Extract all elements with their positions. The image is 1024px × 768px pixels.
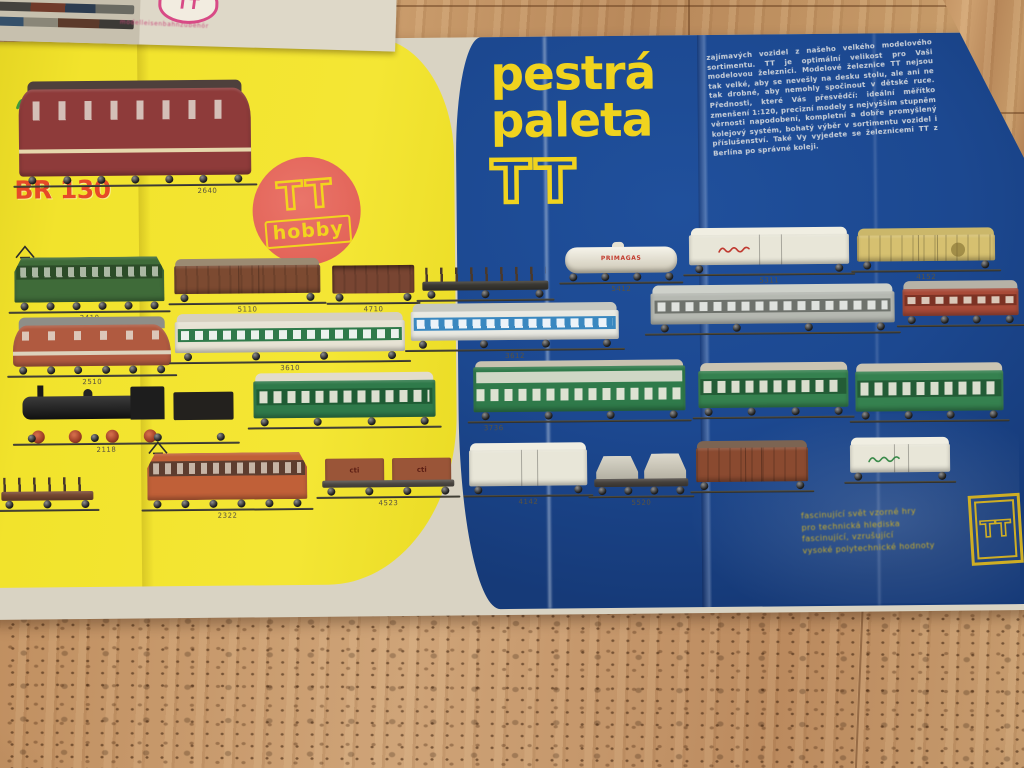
model-hopper-pair: 5520 xyxy=(594,451,688,496)
wagon-body xyxy=(689,234,849,266)
wagon-body xyxy=(696,447,808,482)
title-word-2: paleta xyxy=(491,97,656,146)
wheels xyxy=(154,499,301,508)
floor-plank-seam xyxy=(688,0,690,38)
wheels xyxy=(570,272,673,281)
coach-band xyxy=(701,378,847,395)
steam-cab xyxy=(130,386,165,420)
mini-train-photo xyxy=(0,16,134,29)
wheels xyxy=(5,500,90,509)
body-stripe xyxy=(13,351,171,357)
coach-body xyxy=(698,370,848,408)
loco-windows xyxy=(20,266,158,277)
item-number: 4142 xyxy=(469,497,587,506)
model-reefer-script: 5311 xyxy=(689,227,849,275)
loco-body xyxy=(14,256,164,302)
model-boxcar-yellow: 4152 xyxy=(857,227,995,270)
coach-band xyxy=(858,379,1002,397)
coach-windows xyxy=(704,380,844,393)
wheels xyxy=(427,290,543,299)
model-tank-car: PRIMAGAS 5412 xyxy=(565,241,677,282)
coach-body xyxy=(473,365,685,412)
wheels xyxy=(696,264,843,273)
model-coach-green-c xyxy=(855,362,1004,420)
tank-brand-text: PRIMAGAS xyxy=(565,254,677,262)
wheels xyxy=(336,293,412,302)
loco-body xyxy=(13,324,171,367)
model-coach-double-deck: 3736 xyxy=(473,359,686,421)
body-stripe xyxy=(19,148,251,154)
coach-body xyxy=(650,291,894,324)
brand-script-icon xyxy=(868,449,902,468)
coach-body xyxy=(855,370,1003,411)
wheels xyxy=(474,485,583,494)
wheels xyxy=(21,301,159,310)
coach-body xyxy=(175,320,405,353)
wheels xyxy=(854,472,946,481)
catalogue-poster: BR 130 TT hobby pestrá paleta TT zajímav… xyxy=(0,32,1024,620)
wheels xyxy=(180,293,314,302)
photo-of-catalogue-poster: { "insert": { "logo_tt": "TT", "caption"… xyxy=(0,0,1024,768)
tt-hobby-logo-tt: TT xyxy=(276,174,336,216)
item-number: 2322 xyxy=(148,511,308,521)
model-coach-silver xyxy=(650,283,894,333)
wagon-body xyxy=(174,265,320,294)
coach-windows xyxy=(907,296,1014,304)
footer-text: fascinující svět vzorné hry pro technick… xyxy=(801,505,935,557)
coach-windows xyxy=(657,300,888,311)
container-brand-text: cti xyxy=(392,465,451,474)
wagon-body xyxy=(332,265,414,294)
model-open-wagon: 4710 xyxy=(332,262,414,303)
cab-windows xyxy=(32,100,236,121)
floor-plank-seam xyxy=(388,5,1024,7)
coach-windows xyxy=(259,390,430,403)
window-band xyxy=(149,460,304,476)
loco-windows xyxy=(153,462,300,474)
steam-tender xyxy=(173,392,233,421)
title-word-1: pestrá xyxy=(490,50,655,99)
model-br130: 2640 xyxy=(18,79,251,185)
wooden-floor-speckled xyxy=(0,594,1024,768)
coach-body xyxy=(411,310,619,341)
model-coach-green-mail xyxy=(253,372,436,428)
tt-hobby-logo-hobby: hobby xyxy=(265,215,352,249)
loco-body xyxy=(147,452,307,501)
wheels xyxy=(861,410,997,419)
model-loco-steam: 2118 xyxy=(18,378,234,444)
floor-plank-seam xyxy=(854,610,863,768)
item-number: 5520 xyxy=(594,498,688,507)
model-boxcar-green-script xyxy=(850,437,950,482)
container-brand-text: cti xyxy=(325,466,384,475)
model-wagon-stake-left xyxy=(1,463,93,510)
coach-body xyxy=(902,288,1018,316)
intro-paragraph: zajímavých vozidel z našeho velkého mode… xyxy=(706,38,939,159)
coach-band xyxy=(414,316,616,330)
coach-windows xyxy=(861,381,999,395)
coach-band xyxy=(654,298,891,313)
wagon-body xyxy=(850,444,950,473)
wheels xyxy=(598,486,685,495)
model-container-car: cti cti 4523 xyxy=(322,456,454,497)
steam-boiler xyxy=(23,395,135,419)
wheels xyxy=(705,407,843,416)
wheels xyxy=(328,487,450,496)
wagon-body xyxy=(857,234,995,261)
model-coach-green-b xyxy=(698,362,849,417)
coach-band xyxy=(178,327,401,342)
wheels xyxy=(19,365,164,374)
brand-script-icon xyxy=(718,240,752,259)
wheels xyxy=(701,481,804,490)
coach-body xyxy=(253,380,435,419)
window-band xyxy=(16,264,162,279)
model-coach-green-band: 3610 xyxy=(175,312,405,362)
wheels xyxy=(907,315,1014,324)
item-number: 4523 xyxy=(322,499,454,508)
poster-title: pestrá paleta TT xyxy=(490,50,656,212)
upper-windows xyxy=(476,370,682,384)
loco-body xyxy=(18,87,251,176)
wagon-body xyxy=(469,449,587,486)
model-loco-electric-orange: 2322 xyxy=(147,450,308,510)
coach-band xyxy=(904,294,1017,306)
coach-windows xyxy=(417,318,613,328)
tt-square-logo: TT xyxy=(968,493,1024,566)
title-tt-outline: TT xyxy=(491,152,656,212)
model-coach-blue-band: 3612 xyxy=(411,302,619,350)
tank-barrel: PRIMAGAS xyxy=(565,246,677,273)
model-boxcar-brown: 5110 xyxy=(174,258,320,303)
cab-windows xyxy=(22,330,161,340)
model-loco-diesel-red: 2510 xyxy=(13,316,172,376)
model-reefer-white: 4142 xyxy=(469,442,587,495)
model-flat-stake-black: 4610 xyxy=(422,267,548,300)
model-boxcar-brown-b xyxy=(696,440,808,491)
wheels xyxy=(863,260,990,269)
model-loco-electric-green: 2410 xyxy=(14,254,165,311)
lower-windows xyxy=(477,387,683,402)
coach-windows xyxy=(181,329,398,340)
mini-train-photo xyxy=(0,1,134,14)
model-coach-red xyxy=(902,280,1018,325)
pink-tt-logo-text: TT xyxy=(176,0,201,13)
coach-band xyxy=(256,388,433,405)
tt-square-logo-border xyxy=(974,499,1018,559)
round-emblem-icon xyxy=(951,242,965,256)
